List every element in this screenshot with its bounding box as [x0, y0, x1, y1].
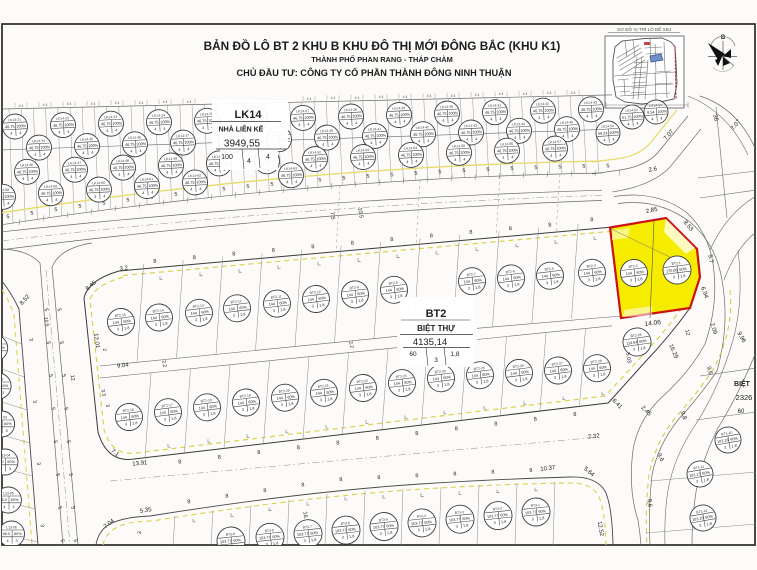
svg-text:46.75: 46.75 [65, 168, 75, 172]
svg-text:4: 4 [151, 191, 153, 195]
svg-text:2,2: 2,2 [160, 360, 167, 368]
svg-text:LK14-30: LK14-30 [440, 105, 453, 110]
svg-text:60%: 60% [462, 516, 471, 521]
svg-text:4 4: 4 4 [427, 94, 432, 98]
svg-text:4: 4 [538, 116, 540, 120]
svg-text:8: 8 [217, 455, 221, 461]
svg-text:4: 4 [130, 149, 132, 153]
svg-text:60%: 60% [500, 513, 509, 518]
svg-text:100%: 100% [633, 114, 644, 119]
svg-text:4: 4 [34, 153, 36, 157]
svg-text:LK14-40: LK14-40 [320, 129, 333, 134]
svg-text:LK14-45: LK14-45 [560, 120, 573, 125]
svg-text:144: 144 [150, 316, 157, 321]
svg-text:144: 144 [502, 277, 509, 282]
svg-text:3: 3 [27, 338, 33, 342]
svg-text:LK14-37: LK14-37 [176, 134, 189, 139]
svg-text:LK14-46: LK14-46 [20, 163, 33, 168]
svg-text:4 4: 4 4 [139, 101, 144, 105]
svg-text:3: 3 [15, 539, 17, 543]
svg-text:8: 8 [272, 248, 276, 254]
svg-text:B: B [721, 35, 726, 41]
svg-text:4: 4 [562, 134, 564, 138]
svg-text:LK14-23: LK14-23 [104, 115, 117, 120]
svg-text:LK14-48: LK14-48 [116, 159, 129, 164]
svg-text:LK14-55: LK14-55 [452, 144, 465, 149]
svg-text:1,8: 1,8 [210, 411, 216, 416]
svg-text:5: 5 [390, 172, 393, 178]
svg-text:4: 4 [547, 115, 549, 119]
svg-text:60%: 60% [272, 534, 281, 539]
svg-text:5: 5 [534, 165, 537, 171]
svg-text:1,8: 1,8 [280, 308, 286, 313]
svg-text:4: 4 [266, 154, 270, 161]
svg-text:4: 4 [115, 128, 117, 132]
svg-text:100%: 100% [148, 184, 159, 189]
svg-text:4: 4 [636, 122, 638, 126]
svg-text:4135,14: 4135,14 [413, 337, 447, 348]
svg-text:8.52: 8.52 [19, 293, 32, 306]
svg-text:60%: 60% [7, 460, 15, 464]
svg-text:100%: 100% [88, 144, 99, 149]
svg-text:60%: 60% [14, 532, 22, 536]
svg-text:THÀNH PHỐ PHAN RANG - THÁP CHÀ: THÀNH PHỐ PHAN RANG - THÁP CHÀM [311, 54, 453, 64]
svg-text:46.75: 46.75 [77, 144, 87, 148]
svg-text:4: 4 [91, 151, 93, 155]
svg-text:46.75: 46.75 [125, 143, 135, 147]
svg-text:8: 8 [232, 251, 236, 257]
svg-text:100%: 100% [64, 123, 75, 128]
svg-text:3: 3 [9, 467, 11, 471]
svg-text:100%: 100% [520, 128, 531, 133]
svg-text:6.41: 6.41 [610, 398, 623, 411]
svg-text:5: 5 [60, 374, 66, 378]
svg-text:46.75: 46.75 [557, 127, 567, 131]
svg-text:LK14-52: LK14-52 [308, 150, 321, 155]
svg-text:5: 5 [54, 207, 57, 213]
svg-text:12.52: 12.52 [596, 521, 605, 537]
svg-text:8: 8 [257, 450, 261, 456]
svg-text:8: 8 [178, 459, 182, 465]
svg-text:46.75: 46.75 [17, 170, 27, 174]
svg-text:100%: 100% [376, 133, 387, 138]
svg-text:3: 3 [12, 505, 14, 509]
svg-text:4: 4 [6, 539, 8, 543]
svg-text:5: 5 [438, 169, 441, 175]
svg-text:4: 4 [142, 191, 144, 195]
svg-text:1,8: 1,8 [680, 274, 686, 279]
svg-text:LK14-28: LK14-28 [344, 108, 357, 113]
svg-text:8: 8 [351, 240, 355, 246]
svg-text:4: 4 [46, 198, 48, 202]
svg-text:46.75: 46.75 [437, 112, 447, 116]
svg-text:8: 8 [509, 226, 513, 232]
svg-text:2,2: 2,2 [347, 341, 354, 349]
svg-text:144: 144 [198, 406, 205, 411]
svg-text:46.75: 46.75 [185, 181, 195, 185]
svg-text:46.75: 46.75 [401, 153, 411, 157]
svg-text:100%: 100% [52, 191, 63, 196]
svg-text:6.94: 6.94 [699, 286, 709, 300]
svg-text:8: 8 [301, 482, 305, 488]
svg-text:8: 8 [311, 244, 315, 250]
svg-text:3: 3 [35, 462, 41, 466]
svg-text:8: 8 [225, 494, 229, 500]
svg-text:46.75: 46.75 [509, 129, 519, 133]
svg-text:7.07: 7.07 [730, 118, 742, 131]
svg-text:3: 3 [104, 404, 110, 408]
svg-text:L13-05: L13-05 [3, 491, 14, 495]
svg-text:4: 4 [466, 138, 468, 142]
svg-text:100%: 100% [400, 113, 411, 118]
svg-text:100%: 100% [508, 148, 519, 153]
svg-text:1,8: 1,8 [202, 317, 208, 322]
svg-text:2.32: 2.32 [588, 433, 601, 440]
svg-text:LK14-27: LK14-27 [296, 109, 309, 114]
svg-text:3: 3 [341, 535, 344, 539]
svg-text:100%: 100% [556, 146, 567, 151]
svg-text:LK14-22: LK14-22 [56, 116, 69, 121]
svg-text:4: 4 [523, 135, 525, 139]
svg-text:1,8: 1,8 [475, 285, 481, 290]
svg-text:46.75: 46.75 [341, 115, 351, 119]
svg-text:4: 4 [0, 202, 1, 206]
svg-text:4: 4 [295, 180, 297, 184]
svg-text:1,8: 1,8 [249, 407, 255, 412]
svg-text:8: 8 [533, 417, 537, 423]
svg-text:100%: 100% [112, 121, 123, 126]
svg-text:8: 8 [390, 237, 394, 243]
svg-text:4: 4 [514, 136, 516, 140]
svg-text:144: 144 [315, 391, 322, 396]
svg-text:1,8: 1,8 [501, 520, 507, 525]
svg-text:LK14-44: LK14-44 [512, 122, 525, 127]
svg-text:4: 4 [379, 141, 381, 145]
svg-text:5: 5 [55, 308, 61, 312]
svg-text:5: 5 [67, 473, 73, 477]
svg-text:LK14-42: LK14-42 [416, 125, 429, 130]
svg-text:4: 4 [94, 195, 96, 199]
svg-text:1,8: 1,8 [600, 372, 606, 377]
svg-text:4: 4 [175, 170, 177, 174]
svg-text:144: 144 [583, 271, 590, 276]
svg-text:4: 4 [559, 153, 561, 157]
svg-text:4 4: 4 4 [523, 92, 528, 96]
svg-text:4: 4 [571, 134, 573, 138]
svg-text:4 4: 4 4 [163, 100, 168, 104]
svg-text:CHỦ ĐẦU TƯ: CÔNG TY CỔ PHẦN TH: CHỦ ĐẦU TƯ: CÔNG TY CỔ PHẦN THÀNH ĐÔNG N… [237, 67, 512, 78]
svg-text:4: 4 [490, 117, 492, 121]
svg-text:3: 3 [455, 524, 458, 528]
svg-text:BẢN ĐỒ LÔ BT 2 KHU B KHU ĐÔ TH: BẢN ĐỒ LÔ BT 2 KHU B KHU ĐÔ THỊ MỚI ĐÔNG… [204, 39, 561, 53]
svg-text:4: 4 [367, 162, 369, 166]
svg-text:3: 3 [417, 528, 420, 532]
svg-text:9,8: 9,8 [679, 411, 688, 422]
svg-text:4: 4 [307, 123, 309, 127]
svg-text:46.75: 46.75 [293, 116, 303, 120]
svg-text:3: 3 [303, 539, 306, 543]
svg-text:8: 8 [573, 412, 577, 418]
svg-text:4: 4 [190, 188, 192, 192]
svg-text:LK14-60: LK14-60 [92, 181, 105, 186]
svg-text:144: 144 [307, 297, 314, 302]
svg-text:5: 5 [47, 374, 53, 378]
svg-text:46.75: 46.75 [449, 151, 459, 155]
svg-text:LK14-36: LK14-36 [128, 135, 141, 140]
svg-text:4: 4 [370, 141, 372, 145]
svg-text:3: 3 [39, 524, 45, 528]
svg-text:LK14-49: LK14-49 [164, 157, 177, 162]
svg-text:2.85: 2.85 [645, 207, 658, 215]
svg-text:5: 5 [582, 164, 585, 170]
svg-text:9.04: 9.04 [117, 362, 130, 369]
svg-text:60%: 60% [310, 531, 319, 536]
svg-text:4: 4 [31, 176, 33, 180]
svg-text:144: 144 [346, 293, 353, 298]
svg-text:LK14-31: LK14-31 [488, 103, 501, 108]
svg-text:144: 144 [112, 320, 119, 325]
svg-text:4: 4 [298, 123, 300, 127]
svg-text:46.75: 46.75 [197, 119, 207, 123]
svg-text:3: 3 [493, 521, 496, 525]
svg-text:60%: 60% [4, 422, 12, 426]
svg-text:5: 5 [486, 167, 489, 173]
svg-text:96.0: 96.0 [0, 498, 7, 502]
svg-text:5: 5 [42, 308, 48, 312]
svg-text:9,6: 9,6 [646, 498, 653, 507]
svg-text:1,8: 1,8 [132, 421, 138, 426]
svg-text:8: 8 [193, 255, 197, 261]
svg-text:5: 5 [45, 341, 51, 345]
svg-text:46.75: 46.75 [89, 188, 99, 192]
svg-text:4: 4 [627, 122, 629, 126]
svg-text:1,8: 1,8 [311, 538, 317, 543]
svg-text:1,8: 1,8 [327, 397, 333, 402]
svg-text:4: 4 [502, 156, 504, 160]
svg-text:4 4: 4 4 [91, 102, 96, 106]
svg-text:7.07: 7.07 [663, 128, 676, 141]
svg-text:51.75: 51.75 [622, 115, 632, 120]
svg-text:1,8: 1,8 [425, 527, 431, 532]
svg-text:LK14-32: LK14-32 [536, 102, 549, 107]
svg-text:4: 4 [415, 160, 417, 164]
svg-text:4: 4 [651, 117, 653, 121]
svg-text:100%: 100% [544, 108, 555, 113]
svg-text:12: 12 [69, 374, 76, 381]
svg-text:8: 8 [590, 217, 594, 223]
svg-text:4: 4 [154, 127, 156, 131]
svg-text:4: 4 [603, 138, 605, 142]
svg-text:1,8: 1,8 [483, 379, 489, 384]
svg-text:L13-06: L13-06 [6, 525, 17, 529]
svg-text:100%: 100% [184, 140, 195, 145]
svg-text:5: 5 [510, 166, 513, 172]
svg-text:4: 4 [43, 152, 45, 156]
svg-text:100%: 100% [568, 127, 579, 132]
svg-text:144: 144 [228, 307, 235, 312]
svg-text:1,8: 1,8 [522, 377, 528, 382]
svg-text:5: 5 [246, 184, 249, 190]
svg-text:60: 60 [738, 409, 745, 415]
svg-text:LK14-33: LK14-33 [584, 100, 597, 105]
svg-text:46.75: 46.75 [581, 108, 591, 112]
svg-text:4: 4 [139, 149, 141, 153]
svg-text:5: 5 [342, 176, 345, 182]
svg-text:8: 8 [453, 471, 457, 477]
svg-text:4: 4 [454, 158, 456, 162]
svg-text:4: 4 [67, 130, 69, 134]
svg-text:144: 144 [393, 382, 400, 387]
svg-text:46.75: 46.75 [533, 109, 543, 113]
svg-text:96.0: 96.0 [3, 532, 10, 536]
svg-text:4 4: 4 4 [403, 95, 408, 99]
svg-text:100%: 100% [412, 152, 423, 157]
svg-text:8: 8 [339, 477, 343, 483]
svg-text:46.75: 46.75 [461, 131, 471, 135]
svg-text:60%: 60% [424, 520, 433, 525]
svg-text:3.2: 3.2 [119, 265, 129, 272]
svg-text:14.06: 14.06 [644, 319, 661, 328]
svg-text:4: 4 [55, 198, 57, 202]
svg-text:46.75: 46.75 [41, 191, 51, 195]
svg-text:4 4: 4 4 [571, 91, 576, 95]
svg-text:144: 144 [625, 271, 632, 276]
svg-text:46.75: 46.75 [281, 173, 291, 177]
svg-text:60: 60 [409, 351, 417, 358]
svg-text:1,8: 1,8 [450, 351, 459, 358]
svg-text:LK14-29: LK14-29 [392, 106, 405, 111]
svg-text:144: 144 [354, 386, 361, 391]
svg-text:3: 3 [226, 546, 229, 550]
svg-text:2.6: 2.6 [648, 166, 658, 173]
svg-text:8: 8 [415, 431, 419, 437]
svg-text:100%: 100% [448, 111, 459, 116]
svg-text:144: 144 [276, 396, 283, 401]
svg-text:4: 4 [106, 129, 108, 133]
svg-text:3: 3 [137, 531, 143, 535]
svg-text:144: 144 [588, 367, 595, 372]
svg-text:4: 4 [187, 147, 189, 151]
svg-text:46.75: 46.75 [53, 123, 63, 127]
svg-text:LK14-34: LK14-34 [32, 139, 45, 144]
svg-text:1,8: 1,8 [637, 277, 643, 282]
svg-text:46.75: 46.75 [209, 162, 219, 166]
svg-text:4: 4 [10, 132, 12, 136]
svg-text:100%: 100% [496, 110, 507, 115]
svg-text:LK14-62: LK14-62 [188, 173, 201, 178]
svg-text:4 4: 4 4 [187, 100, 192, 104]
svg-text:4: 4 [103, 194, 105, 198]
svg-text:144: 144 [549, 369, 556, 374]
svg-text:3: 3 [531, 517, 534, 521]
svg-text:100%: 100% [328, 135, 339, 140]
svg-text:46.75: 46.75 [305, 157, 315, 161]
svg-text:4: 4 [418, 139, 420, 143]
svg-text:10.37: 10.37 [540, 465, 556, 473]
svg-text:8: 8 [377, 475, 381, 481]
svg-text:4: 4 [79, 174, 81, 178]
svg-text:100: 100 [221, 154, 233, 161]
svg-text:16.29: 16.29 [667, 344, 679, 361]
svg-text:5: 5 [606, 163, 609, 169]
svg-text:60%: 60% [386, 524, 395, 529]
svg-text:2326: 2326 [736, 393, 753, 402]
svg-text:4: 4 [118, 173, 120, 177]
svg-text:4: 4 [82, 151, 84, 155]
svg-text:60%: 60% [538, 509, 547, 514]
svg-text:4: 4 [499, 117, 501, 121]
svg-text:144: 144 [159, 411, 166, 416]
svg-text:4: 4 [319, 164, 321, 168]
svg-text:10.5: 10.5 [42, 317, 50, 328]
svg-text:8: 8 [187, 499, 191, 505]
svg-text:4 4: 4 4 [379, 95, 384, 99]
svg-text:144: 144 [510, 371, 517, 376]
svg-text:144: 144 [385, 288, 392, 293]
svg-text:LK14-54: LK14-54 [404, 146, 417, 151]
svg-text:144: 144 [471, 374, 478, 379]
svg-text:1,8: 1,8 [171, 416, 177, 421]
svg-text:4: 4 [346, 122, 348, 126]
svg-text:46.75: 46.75 [317, 136, 327, 140]
svg-text:100%: 100% [76, 167, 87, 172]
svg-text:1,8: 1,8 [124, 326, 130, 331]
svg-text:3: 3 [265, 543, 268, 547]
svg-text:100%: 100% [136, 142, 147, 147]
svg-text:8: 8 [494, 421, 498, 427]
svg-text:LK14-24: LK14-24 [152, 113, 165, 118]
svg-text:8: 8 [548, 222, 552, 228]
svg-text:60%: 60% [233, 538, 242, 543]
svg-text:46.75: 46.75 [173, 141, 183, 145]
svg-text:46.75: 46.75 [113, 166, 123, 170]
svg-text:5: 5 [52, 440, 58, 444]
svg-text:5: 5 [54, 473, 60, 477]
svg-text:5: 5 [174, 192, 177, 198]
svg-text:5: 5 [126, 197, 129, 203]
svg-text:144: 144 [237, 401, 244, 406]
svg-text:4 4: 4 4 [451, 94, 456, 98]
svg-text:4 4: 4 4 [307, 97, 312, 101]
svg-text:46.75: 46.75 [353, 155, 363, 159]
svg-text:BIỆT THỰ: BIỆT THỰ [417, 324, 455, 333]
svg-text:5: 5 [62, 407, 68, 411]
svg-text:1,8: 1,8 [366, 392, 372, 397]
svg-text:100%: 100% [172, 163, 183, 168]
svg-text:46.75: 46.75 [149, 120, 159, 124]
svg-text:100%: 100% [160, 120, 171, 125]
svg-text:LK14-56: LK14-56 [500, 142, 513, 147]
svg-text:4: 4 [660, 117, 662, 121]
svg-text:LK14-21: LK14-21 [8, 118, 21, 123]
svg-text:46.75: 46.75 [545, 147, 555, 151]
svg-text:4 4: 4 4 [331, 96, 336, 100]
svg-text:LK14-53: LK14-53 [356, 148, 369, 153]
svg-text:5: 5 [6, 214, 9, 220]
svg-text:46.75: 46.75 [29, 146, 39, 150]
svg-text:1,8: 1,8 [595, 277, 601, 282]
svg-text:100%: 100% [304, 115, 315, 120]
svg-text:144: 144 [432, 377, 439, 382]
svg-text:100%: 100% [424, 132, 435, 137]
svg-text:4: 4 [22, 177, 24, 181]
svg-text:5: 5 [49, 407, 55, 411]
svg-text:BT2: BT2 [426, 308, 447, 320]
svg-text:46.75: 46.75 [389, 113, 399, 117]
svg-text:8: 8 [336, 440, 340, 446]
svg-text:3: 3 [434, 357, 438, 364]
svg-text:1,8: 1,8 [514, 282, 520, 287]
